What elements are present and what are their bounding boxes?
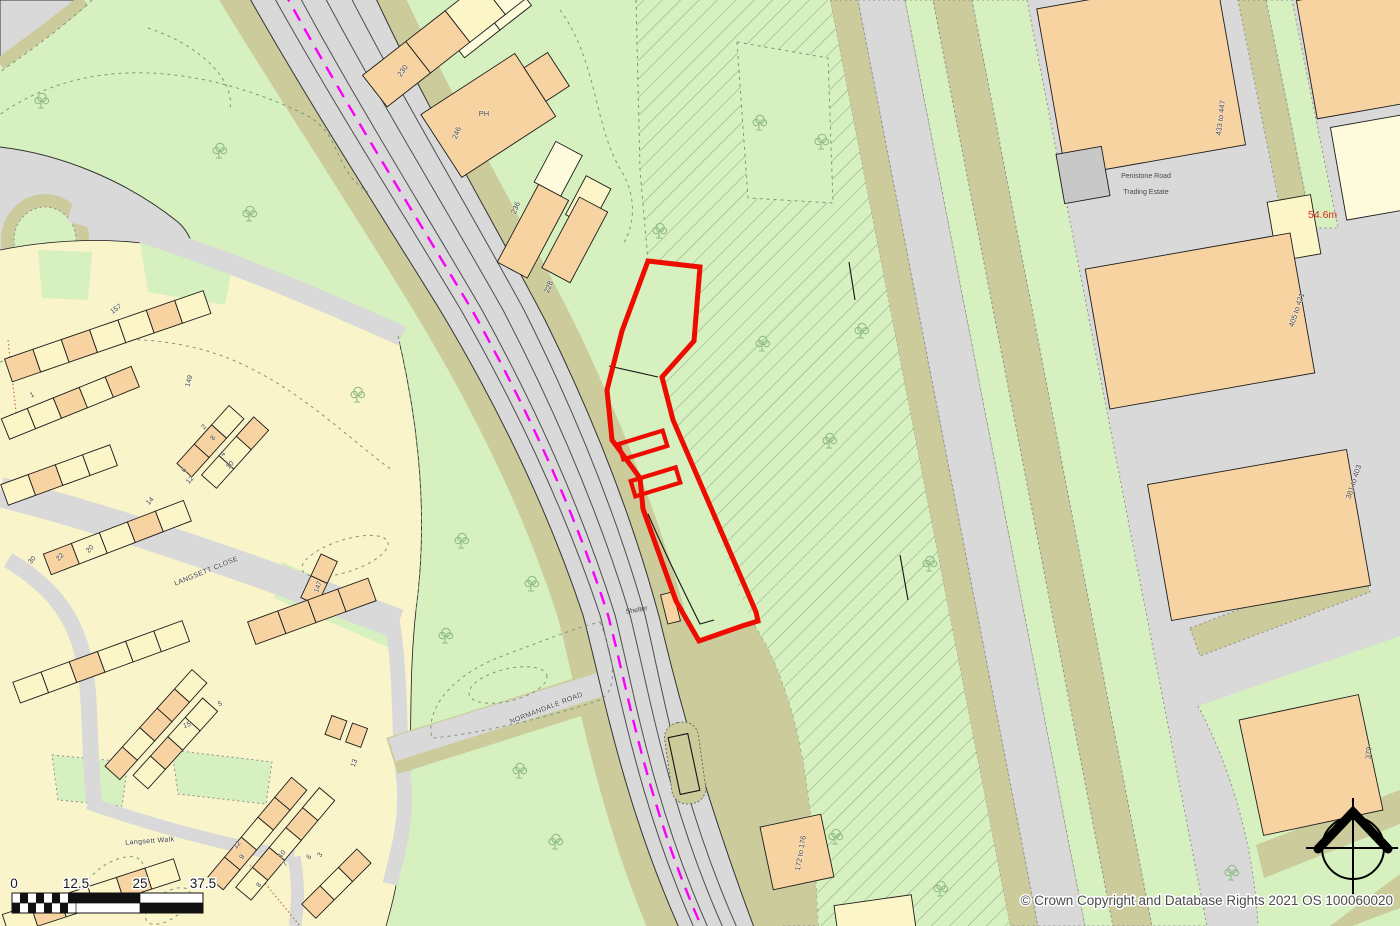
bldg-379: 379: [1363, 746, 1373, 759]
scale-0: 0: [10, 876, 18, 891]
os-site-plan: LANGSETT CLOSE Langsett Walk NORMANDALE …: [0, 0, 1400, 926]
scale-12-5: 12.5: [63, 876, 89, 891]
scale-37-5: 37.5: [190, 876, 216, 891]
label-trading-estate: Trading Estate: [1123, 189, 1168, 196]
copyright-notice: © Crown Copyright and Database Rights 20…: [1021, 893, 1393, 908]
scale-25: 25: [132, 876, 147, 891]
label-penistone-road: Penistone Road: [1121, 173, 1171, 180]
map-canvas: LANGSETT CLOSE Langsett Walk NORMANDALE …: [0, 0, 1400, 926]
spot-height: 54.6m: [1308, 209, 1337, 221]
bldg-ph: PH: [479, 109, 489, 118]
